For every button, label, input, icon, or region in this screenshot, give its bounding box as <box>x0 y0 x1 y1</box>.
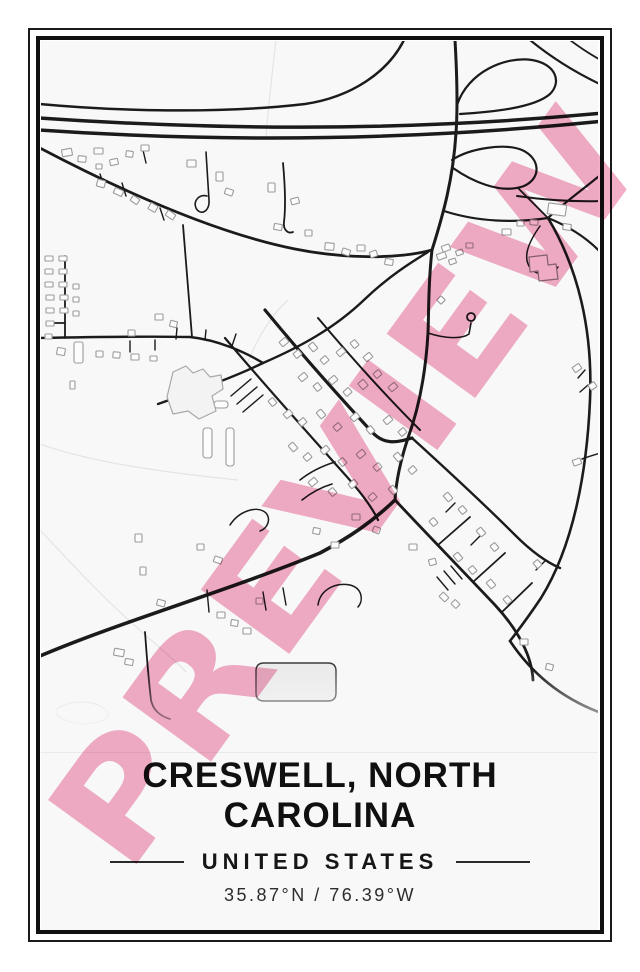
city-title-line2: CAROLINA <box>42 796 598 836</box>
subtitle-rule-right <box>456 861 530 864</box>
map-poster: CRESWELL, NORTH CAROLINA UNITED STATES 3… <box>0 0 640 972</box>
country-row: UNITED STATES <box>42 849 598 875</box>
country-label: UNITED STATES <box>202 849 439 875</box>
city-title-line1: CRESWELL, NORTH <box>42 756 598 796</box>
subtitle-rule-left <box>110 861 184 864</box>
poster-caption: CRESWELL, NORTH CAROLINA UNITED STATES 3… <box>42 756 598 906</box>
coordinates-label: 35.87°N / 76.39°W <box>42 885 598 906</box>
